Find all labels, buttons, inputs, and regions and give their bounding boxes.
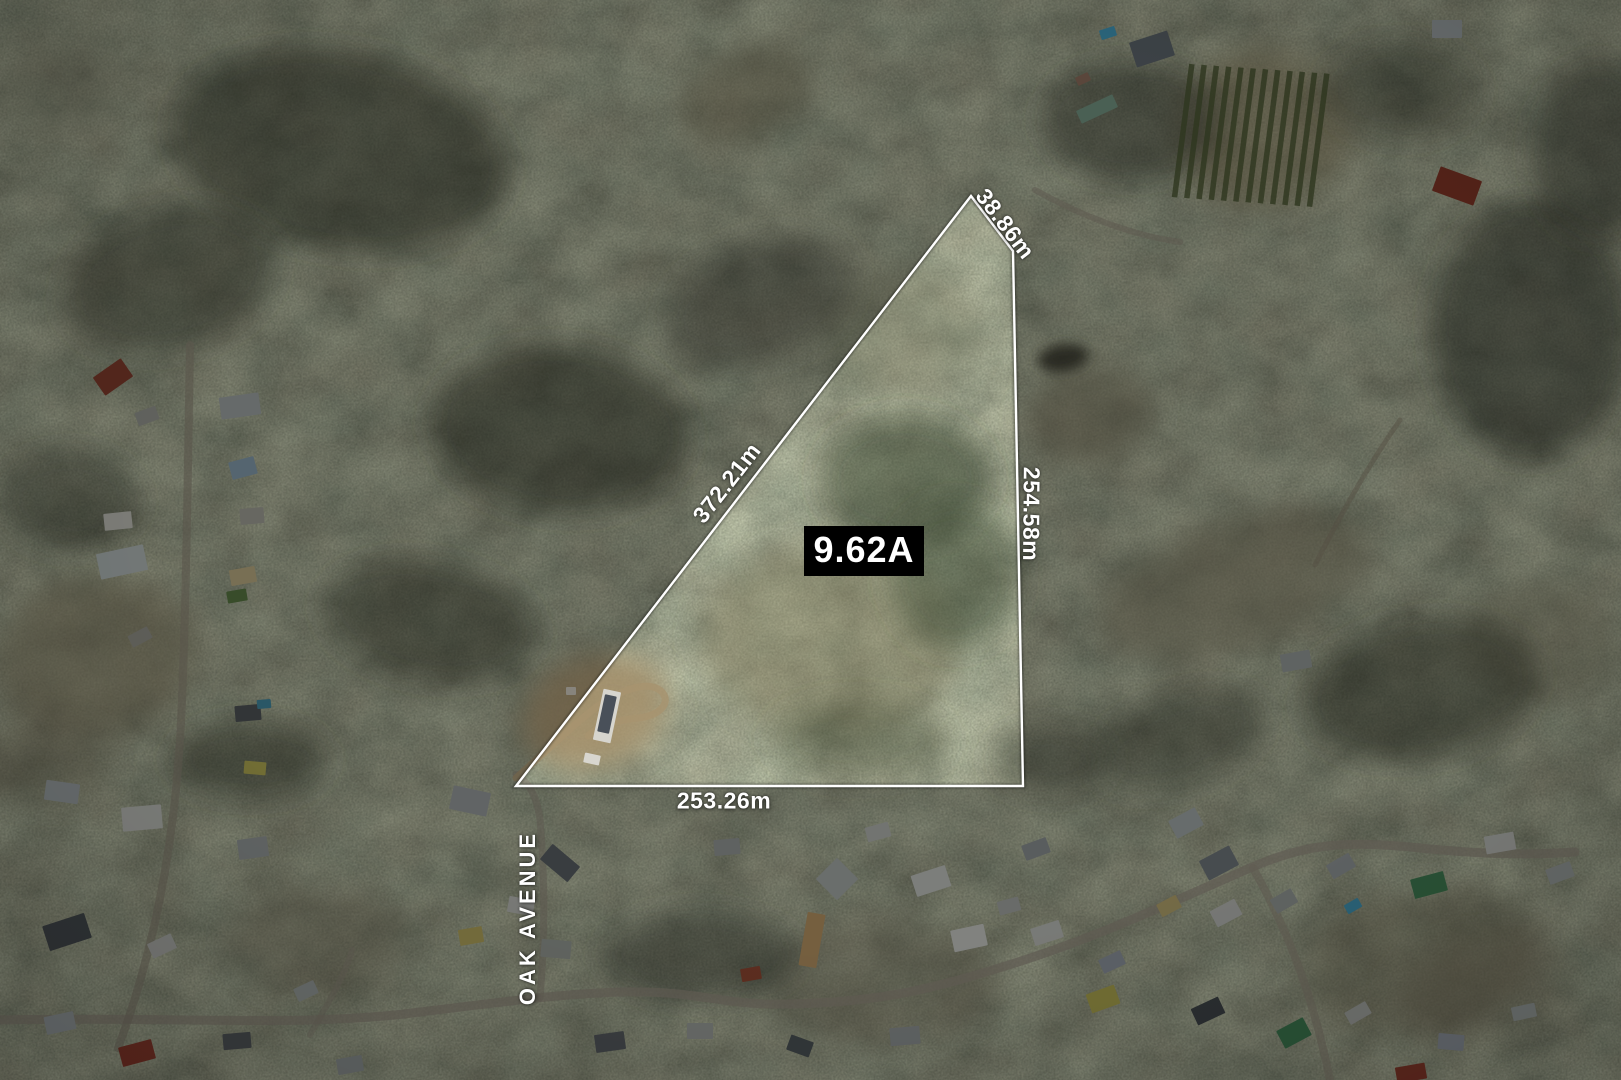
dimension-label-bottom: 253.26m (677, 790, 771, 813)
street-name-label: OAK AVENUE (517, 831, 539, 1005)
dimension-label-right: 254.58m (1019, 467, 1043, 562)
aerial-property-photo: 38.86m 372.21m 254.58m 253.26m 9.62A OAK… (0, 0, 1621, 1080)
area-badge-label: 9.62A (813, 532, 914, 568)
area-badge: 9.62A (804, 526, 924, 576)
